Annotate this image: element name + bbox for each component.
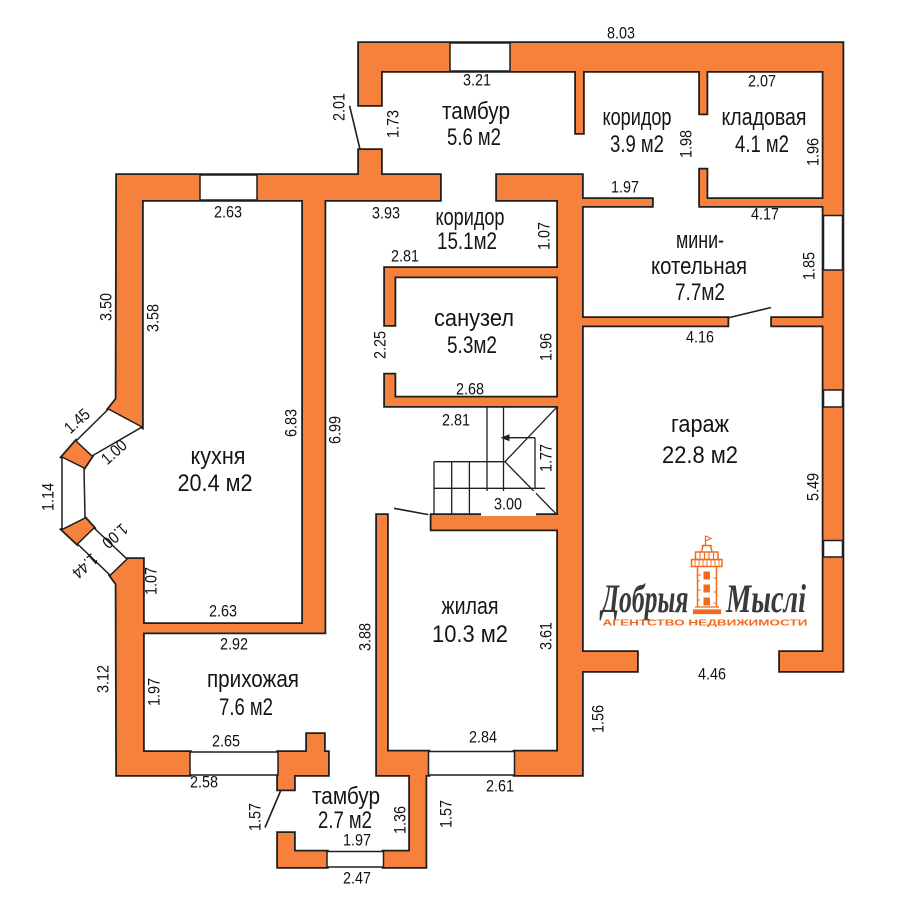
svg-text:1.57: 1.57 bbox=[438, 800, 456, 828]
svg-text:1.73: 1.73 bbox=[385, 110, 403, 138]
svg-text:гараж: гараж bbox=[671, 411, 729, 438]
svg-text:8.03: 8.03 bbox=[607, 25, 635, 43]
svg-text:мини-: мини- bbox=[676, 227, 724, 254]
svg-text:4.17: 4.17 bbox=[751, 206, 779, 224]
svg-text:3.61: 3.61 bbox=[538, 622, 556, 650]
svg-text:6.83: 6.83 bbox=[283, 409, 301, 437]
svg-text:тамбур: тамбур bbox=[442, 98, 510, 125]
svg-text:2.01: 2.01 bbox=[331, 93, 349, 121]
svg-text:1.56: 1.56 bbox=[590, 705, 608, 733]
svg-text:1.36: 1.36 bbox=[392, 806, 410, 834]
svg-text:прихожая: прихожая bbox=[207, 666, 299, 693]
svg-text:1.07: 1.07 bbox=[536, 222, 554, 250]
svg-text:2.84: 2.84 bbox=[469, 729, 497, 747]
svg-text:1.96: 1.96 bbox=[538, 333, 556, 361]
svg-text:2.81: 2.81 bbox=[442, 412, 470, 430]
svg-text:коридор: коридор bbox=[603, 104, 672, 131]
svg-text:3.21: 3.21 bbox=[463, 72, 491, 90]
svg-text:1.14: 1.14 bbox=[40, 483, 58, 511]
svg-text:тамбур: тамбур bbox=[312, 783, 380, 810]
svg-text:Мыслі: Мыслі bbox=[725, 576, 806, 621]
svg-text:5.3м2: 5.3м2 bbox=[447, 332, 497, 359]
svg-text:2.68: 2.68 bbox=[456, 381, 484, 399]
svg-text:2.7 м2: 2.7 м2 bbox=[318, 807, 372, 834]
svg-text:4.16: 4.16 bbox=[686, 329, 714, 347]
svg-text:5.49: 5.49 bbox=[805, 473, 823, 501]
svg-text:2.63: 2.63 bbox=[209, 603, 237, 621]
svg-text:2.07: 2.07 bbox=[748, 73, 776, 91]
svg-text:1.97: 1.97 bbox=[146, 678, 164, 706]
svg-text:кладовая: кладовая bbox=[722, 104, 807, 131]
svg-text:котельная: котельная bbox=[651, 253, 747, 280]
svg-text:3.12: 3.12 bbox=[95, 665, 113, 693]
svg-text:2.61: 2.61 bbox=[486, 778, 514, 796]
svg-text:4.1 м2: 4.1 м2 bbox=[735, 131, 789, 158]
svg-text:2.25: 2.25 bbox=[372, 331, 390, 359]
svg-text:20.4 м2: 20.4 м2 bbox=[178, 470, 253, 497]
svg-text:1.97: 1.97 bbox=[611, 179, 639, 197]
svg-text:кухня: кухня bbox=[191, 443, 246, 470]
svg-text:АГЕНТСТВО НЕДВИЖИМОСТИ: АГЕНТСТВО НЕДВИЖИМОСТИ bbox=[603, 618, 808, 628]
svg-text:4.46: 4.46 bbox=[698, 666, 726, 684]
svg-text:1.97: 1.97 bbox=[343, 832, 371, 850]
svg-text:2.92: 2.92 bbox=[220, 636, 248, 654]
svg-text:1.96: 1.96 bbox=[805, 138, 823, 166]
svg-text:3.58: 3.58 bbox=[145, 304, 163, 332]
svg-text:7.6 м2: 7.6 м2 bbox=[219, 694, 273, 721]
svg-text:коридор: коридор bbox=[436, 204, 505, 231]
svg-text:3.9 м2: 3.9 м2 bbox=[610, 131, 664, 158]
svg-text:7.7м2: 7.7м2 bbox=[675, 279, 725, 306]
svg-text:10.3 м2: 10.3 м2 bbox=[432, 621, 508, 648]
svg-text:2.81: 2.81 bbox=[391, 248, 419, 266]
svg-text:1.98: 1.98 bbox=[678, 130, 696, 158]
svg-text:1.57: 1.57 bbox=[247, 803, 265, 831]
svg-text:22.8 м2: 22.8 м2 bbox=[662, 442, 738, 469]
svg-text:Добрыя: Добрыя bbox=[599, 576, 689, 621]
svg-text:2.63: 2.63 bbox=[214, 204, 242, 222]
svg-text:3.50: 3.50 bbox=[98, 293, 116, 321]
svg-text:5.6 м2: 5.6 м2 bbox=[447, 124, 501, 151]
svg-text:санузел: санузел bbox=[434, 305, 514, 332]
svg-text:3.00: 3.00 bbox=[494, 496, 522, 514]
svg-text:6.99: 6.99 bbox=[327, 416, 345, 444]
svg-text:3.88: 3.88 bbox=[357, 623, 375, 651]
svg-text:3.93: 3.93 bbox=[372, 205, 400, 223]
svg-text:жилая: жилая bbox=[442, 593, 499, 620]
svg-text:15.1м2: 15.1м2 bbox=[437, 228, 497, 255]
svg-text:1.85: 1.85 bbox=[801, 252, 819, 280]
svg-text:2.65: 2.65 bbox=[212, 733, 240, 751]
svg-text:2.47: 2.47 bbox=[343, 870, 371, 888]
svg-text:1.07: 1.07 bbox=[143, 567, 161, 595]
svg-text:1.77: 1.77 bbox=[538, 444, 556, 472]
svg-text:2.58: 2.58 bbox=[190, 774, 218, 792]
